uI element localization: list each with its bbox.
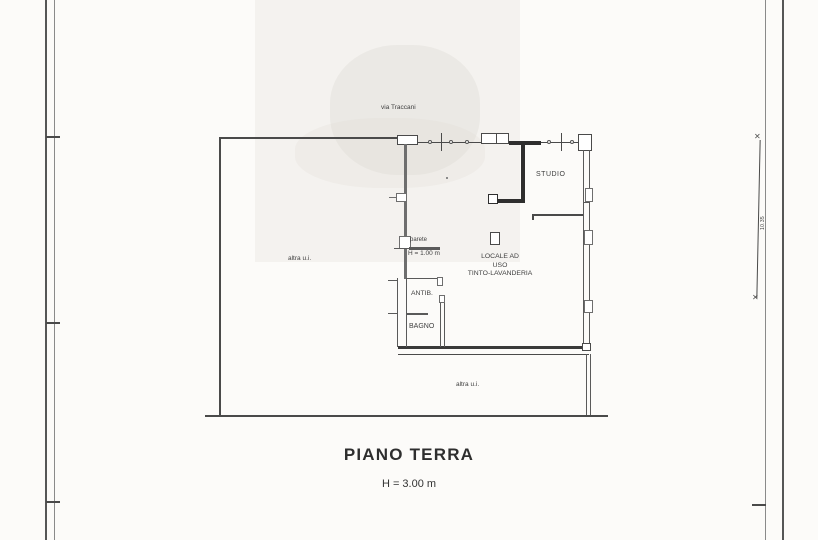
corner-pillar-symbol bbox=[578, 134, 592, 151]
wall-joint bbox=[583, 202, 590, 203]
studio-south-wall bbox=[532, 214, 584, 216]
room-label-other-unit-left: altra u.i. bbox=[288, 255, 311, 262]
door-jamb bbox=[532, 214, 534, 220]
dimension-value-vertical: 10.35 bbox=[760, 200, 766, 230]
locale-line-2: USO bbox=[450, 262, 550, 271]
wall-joint-tick bbox=[441, 133, 442, 151]
window-divider bbox=[496, 133, 497, 144]
studio-wall-horizontal bbox=[497, 199, 525, 203]
floor-title: PIANO TERRA bbox=[304, 445, 514, 465]
frame-left-tick bbox=[46, 136, 60, 138]
window-symbol bbox=[585, 188, 593, 202]
room-label-bagno: BAGNO bbox=[409, 323, 434, 330]
lower-strip-top-line bbox=[398, 354, 589, 355]
scan-artifact-blob bbox=[255, 0, 520, 262]
door-hinge-icon bbox=[570, 140, 574, 144]
frame-right-outer-line bbox=[782, 0, 784, 540]
frame-right-inner-line bbox=[765, 0, 766, 540]
scan-speckle bbox=[446, 177, 448, 179]
dimension-arrow-icon: ✕ bbox=[752, 294, 759, 302]
pillar-symbol bbox=[397, 135, 418, 145]
door-leaf-symbol bbox=[490, 232, 500, 245]
outer-wall-left bbox=[219, 137, 221, 416]
window-symbol bbox=[584, 300, 593, 313]
frame-left-tick bbox=[46, 501, 60, 503]
floor-height-label: H = 3.00 m bbox=[344, 478, 474, 490]
room-label-locale: LOCALE AD USO TINTO-LAVANDERIA bbox=[450, 253, 550, 279]
frame-left-inner-line bbox=[54, 0, 55, 540]
locale-line-1: LOCALE AD bbox=[450, 253, 550, 262]
dimension-arrow-icon: ✕ bbox=[754, 133, 761, 141]
frame-left-tick bbox=[46, 322, 60, 324]
locale-south-wall bbox=[398, 346, 584, 349]
room-label-other-unit-bottom: altra u.i. bbox=[456, 381, 479, 388]
low-wall-label: parete bbox=[410, 237, 427, 243]
door-hinge-icon bbox=[449, 140, 453, 144]
wall-joint-tick bbox=[561, 133, 562, 151]
wall-end-cap bbox=[582, 343, 591, 351]
door-hinge-icon bbox=[465, 140, 469, 144]
frame-right-tick bbox=[752, 504, 766, 506]
street-label: via Traccani bbox=[381, 104, 416, 111]
wall-recess-symbol bbox=[396, 193, 407, 202]
lower-strip-east-wall bbox=[586, 354, 591, 415]
parcel-boundary-bottom bbox=[205, 415, 608, 417]
door-hinge-icon bbox=[428, 140, 432, 144]
window-symbol bbox=[584, 230, 593, 245]
frame-left-outer-line bbox=[45, 0, 47, 540]
outer-wall-top-left bbox=[219, 137, 398, 139]
wall-recess-tick bbox=[389, 197, 397, 198]
scanned-floorplan-sheet: ✕ ✕ 10.35 via Traccani parete H = 1.00 m bbox=[0, 0, 818, 540]
bagno-east-wall bbox=[440, 302, 445, 347]
room-label-studio: STUDIO bbox=[536, 171, 565, 178]
door-hinge-icon bbox=[547, 140, 551, 144]
central-wall-segment bbox=[404, 249, 407, 279]
central-wall-segment bbox=[404, 202, 407, 237]
low-wall-height-label: H = 1.00 m bbox=[408, 250, 440, 257]
locale-line-3: TINTO-LAVANDERIA bbox=[450, 270, 550, 279]
studio-wall-vertical bbox=[521, 144, 525, 203]
antib-north-wall bbox=[407, 278, 439, 279]
outer-wall-east bbox=[583, 150, 590, 347]
wall-tick bbox=[388, 313, 397, 314]
scan-artifact-blob bbox=[295, 118, 485, 188]
wall-tick bbox=[388, 280, 397, 281]
antib-bagno-divider-wall bbox=[407, 313, 428, 315]
central-wall-segment bbox=[404, 144, 407, 193]
wall-end-cap bbox=[488, 194, 498, 204]
west-wall-double bbox=[397, 278, 407, 347]
north-wall-thick-segment bbox=[509, 141, 541, 145]
room-label-antibagno: ANTIB. bbox=[411, 290, 433, 297]
door-jamb bbox=[437, 277, 443, 286]
low-wall-tick bbox=[394, 248, 409, 249]
window-symbol bbox=[481, 133, 509, 144]
door-jamb bbox=[439, 295, 445, 303]
